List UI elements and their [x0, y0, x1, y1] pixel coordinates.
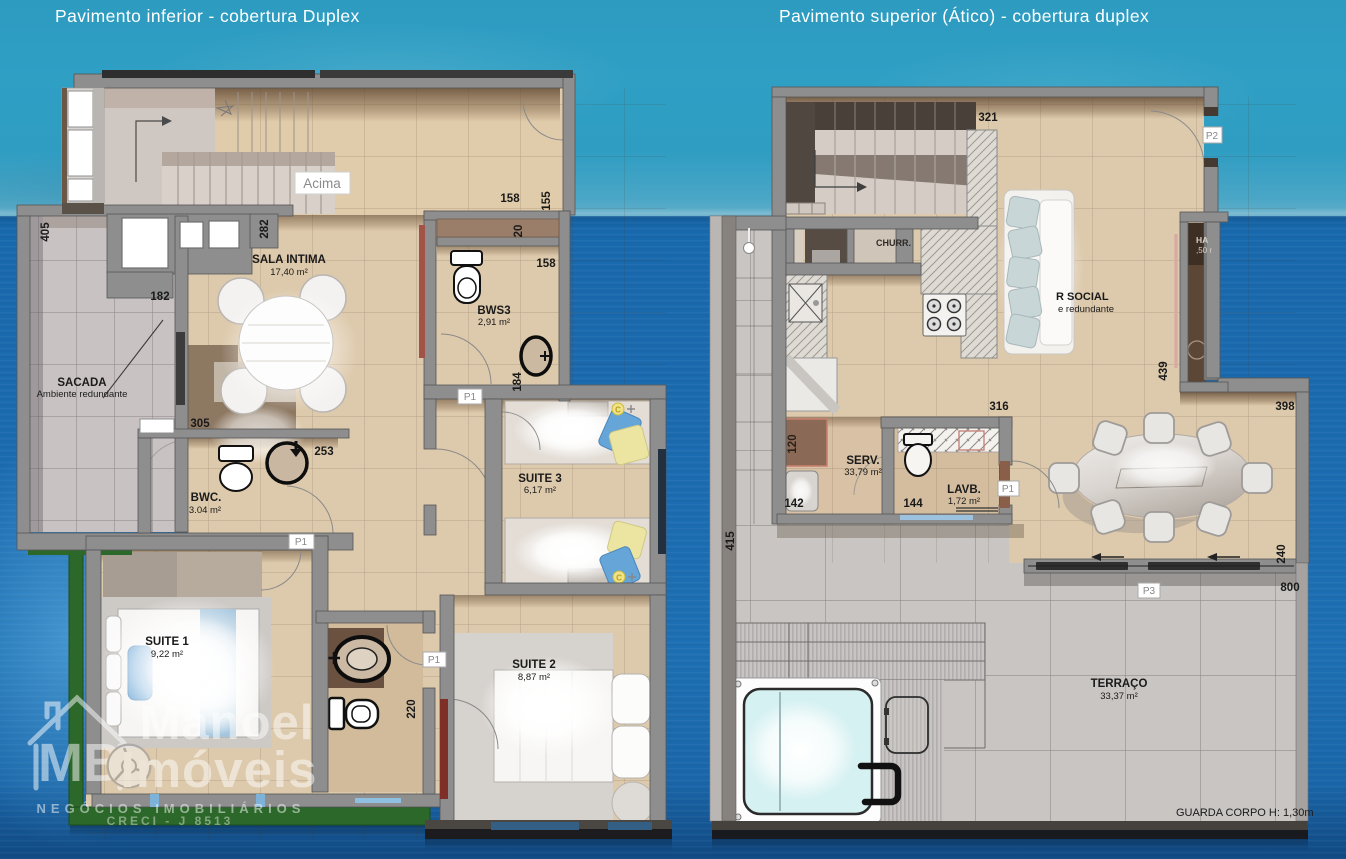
svg-text:C: C: [615, 406, 621, 415]
svg-text:6,17 m²: 6,17 m²: [524, 485, 556, 496]
svg-text:SERV.: SERV.: [846, 455, 879, 467]
svg-text:2,91 m²: 2,91 m²: [478, 317, 510, 328]
svg-text:1,72 m²: 1,72 m²: [948, 496, 980, 507]
svg-text:P1: P1: [295, 537, 308, 548]
svg-text:LAVB.: LAVB.: [947, 484, 981, 496]
svg-text:305: 305: [190, 418, 210, 430]
svg-text:SUITE 1: SUITE 1: [145, 636, 189, 648]
svg-text:Imóveis: Imóveis: [121, 741, 318, 798]
svg-text:158: 158: [536, 258, 556, 270]
svg-text:800: 800: [1280, 582, 1299, 594]
svg-text:20: 20: [513, 225, 525, 238]
svg-text:SUITE 3: SUITE 3: [518, 473, 561, 485]
svg-text:SALA INTIMA: SALA INTIMA: [252, 254, 326, 266]
svg-text:C: C: [616, 574, 622, 583]
svg-text:398: 398: [1275, 401, 1295, 413]
svg-text:405: 405: [40, 222, 52, 242]
svg-text:BWS3: BWS3: [477, 305, 510, 317]
svg-text:GUARDA CORPO H: 1,30m: GUARDA CORPO H: 1,30m: [1176, 807, 1314, 819]
svg-text:253: 253: [314, 446, 333, 458]
svg-text:9,22 m²: 9,22 m²: [151, 649, 183, 660]
svg-text:184: 184: [512, 372, 524, 392]
svg-text:P1: P1: [464, 392, 477, 403]
svg-text:P2: P2: [1206, 131, 1219, 142]
svg-text:HA: HA: [1196, 235, 1208, 245]
svg-text:P1: P1: [1002, 484, 1015, 495]
svg-text:Acima: Acima: [303, 176, 341, 191]
svg-text:Ambiente redundante: Ambiente redundante: [37, 389, 128, 400]
svg-text:CHURR.: CHURR.: [876, 238, 911, 248]
svg-text:BWC.: BWC.: [191, 492, 222, 504]
svg-text:P1: P1: [428, 655, 441, 666]
svg-text:155: 155: [541, 191, 553, 211]
svg-text:SACADA: SACADA: [57, 377, 106, 389]
svg-text:158: 158: [500, 193, 520, 205]
svg-text:182: 182: [150, 291, 169, 303]
svg-text:321: 321: [978, 112, 998, 124]
svg-text:33,37 m²: 33,37 m²: [1100, 691, 1138, 702]
svg-text:142: 142: [784, 498, 803, 510]
svg-text:R SOCIAL: R SOCIAL: [1056, 291, 1109, 303]
svg-text:120: 120: [787, 434, 799, 453]
svg-text:144: 144: [903, 498, 923, 510]
svg-text:220: 220: [406, 699, 418, 718]
svg-text:P3: P3: [1143, 586, 1156, 597]
svg-text:CRECI - J 8513: CRECI - J 8513: [107, 814, 234, 828]
svg-text:SUITE 2: SUITE 2: [512, 659, 555, 671]
svg-text:439: 439: [1158, 361, 1170, 380]
svg-text:3.04 m²: 3.04 m²: [189, 505, 221, 516]
svg-text:316: 316: [989, 401, 1008, 413]
svg-text:8,87 m²: 8,87 m²: [518, 672, 550, 683]
svg-text:282: 282: [259, 219, 271, 238]
svg-text:240: 240: [1276, 544, 1288, 563]
svg-text:,50 r: ,50 r: [1196, 246, 1212, 255]
svg-text:33,79 m²: 33,79 m²: [844, 467, 882, 478]
svg-text:17,40 m²: 17,40 m²: [270, 267, 308, 278]
svg-text:e redundante: e redundante: [1058, 304, 1114, 315]
svg-text:415: 415: [725, 531, 737, 551]
svg-text:TERRAÇO: TERRAÇO: [1091, 678, 1148, 690]
